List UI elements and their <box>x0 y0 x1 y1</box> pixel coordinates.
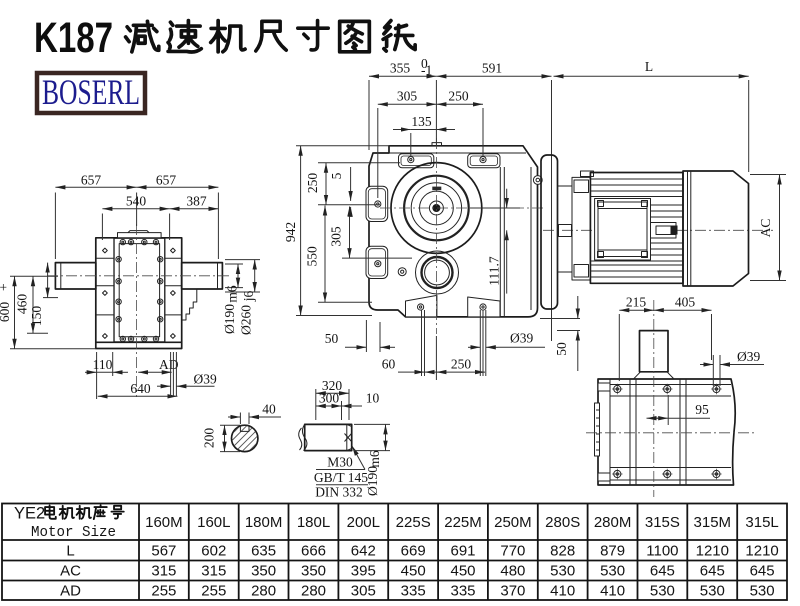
svg-text:Ø39: Ø39 <box>194 371 217 386</box>
svg-text:200L: 200L <box>347 514 380 531</box>
svg-text:355: 355 <box>390 61 411 76</box>
svg-text:160M: 160M <box>145 514 183 531</box>
svg-text:Ø190: Ø190 <box>365 466 380 496</box>
svg-text:Motor Size: Motor Size <box>31 524 116 541</box>
svg-text:M30: M30 <box>327 455 353 470</box>
svg-text:350: 350 <box>251 563 276 580</box>
svg-text:335: 335 <box>401 583 426 600</box>
svg-text:315S: 315S <box>645 514 680 531</box>
svg-text:669: 669 <box>401 543 426 560</box>
svg-text:942: 942 <box>283 222 298 242</box>
svg-text:395: 395 <box>351 563 376 580</box>
svg-text:645: 645 <box>750 563 775 580</box>
svg-text:255: 255 <box>151 583 176 600</box>
svg-text:DIN 332: DIN 332 <box>315 485 363 500</box>
svg-text:530: 530 <box>700 583 725 600</box>
svg-text:60: 60 <box>382 356 396 371</box>
svg-text:160L: 160L <box>197 514 230 531</box>
svg-text:645: 645 <box>700 563 725 580</box>
svg-text:600: 600 <box>0 302 12 323</box>
svg-text:540: 540 <box>126 194 147 209</box>
svg-text:j6: j6 <box>241 291 256 303</box>
svg-text:L: L <box>645 59 653 74</box>
svg-text:1210: 1210 <box>745 543 778 560</box>
svg-text:250: 250 <box>448 89 469 104</box>
svg-text:AC: AC <box>758 219 773 238</box>
svg-text:111.7: 111.7 <box>487 256 502 286</box>
svg-text:280M: 280M <box>594 514 632 531</box>
svg-text:657: 657 <box>81 173 102 188</box>
svg-text:410: 410 <box>600 583 625 600</box>
svg-text:280S: 280S <box>545 514 580 531</box>
svg-text:150: 150 <box>29 306 44 327</box>
svg-text:225M: 225M <box>444 514 482 531</box>
svg-text:Ø39: Ø39 <box>510 331 533 346</box>
svg-text:691: 691 <box>450 543 475 560</box>
svg-text:215: 215 <box>626 295 647 310</box>
svg-text:315M: 315M <box>694 514 732 531</box>
svg-text:250: 250 <box>305 173 320 194</box>
svg-text:250: 250 <box>451 356 472 371</box>
svg-text:Ø190: Ø190 <box>222 304 237 334</box>
svg-text:460: 460 <box>15 294 30 315</box>
svg-text:300: 300 <box>319 391 340 406</box>
svg-text:828: 828 <box>550 543 575 560</box>
svg-text:879: 879 <box>600 543 625 560</box>
svg-text:50: 50 <box>325 331 339 346</box>
svg-text:305: 305 <box>397 89 418 104</box>
svg-text:335: 335 <box>450 583 475 600</box>
svg-text:95: 95 <box>695 402 709 417</box>
svg-text:180L: 180L <box>297 514 330 531</box>
svg-text:200: 200 <box>202 428 217 449</box>
svg-text:L: L <box>66 543 74 560</box>
svg-text:640: 640 <box>130 381 151 396</box>
svg-text:40: 40 <box>262 402 276 417</box>
svg-text:405: 405 <box>675 295 696 310</box>
svg-text:315: 315 <box>201 563 226 580</box>
svg-text:450: 450 <box>450 563 475 580</box>
svg-text:450: 450 <box>401 563 426 580</box>
svg-text:5: 5 <box>329 172 344 179</box>
svg-text:602: 602 <box>201 543 226 560</box>
svg-text:666: 666 <box>301 543 326 560</box>
svg-text:10: 10 <box>366 391 380 406</box>
svg-text:280: 280 <box>301 583 326 600</box>
svg-text:657: 657 <box>156 173 177 188</box>
svg-text:480: 480 <box>500 563 525 580</box>
svg-text:591: 591 <box>482 61 502 76</box>
svg-text:770: 770 <box>500 543 525 560</box>
svg-text:280: 280 <box>251 583 276 600</box>
svg-text:GB/T 145: GB/T 145 <box>314 470 368 485</box>
svg-text:315: 315 <box>151 563 176 580</box>
svg-text:250M: 250M <box>494 514 532 531</box>
svg-text:110: 110 <box>93 357 113 372</box>
svg-text:530: 530 <box>600 563 625 580</box>
svg-text:305: 305 <box>329 226 344 247</box>
svg-text:BOSERL: BOSERL <box>42 72 140 112</box>
svg-text:305: 305 <box>351 583 376 600</box>
svg-text:255: 255 <box>201 583 226 600</box>
svg-text:387: 387 <box>186 194 207 209</box>
svg-text:180M: 180M <box>245 514 283 531</box>
svg-text:635: 635 <box>251 543 276 560</box>
svg-text:Ø39: Ø39 <box>737 349 760 364</box>
svg-text:530: 530 <box>650 583 675 600</box>
svg-text:370: 370 <box>500 583 525 600</box>
svg-text:-1: -1 <box>421 63 432 78</box>
svg-text:m6: m6 <box>367 450 382 468</box>
svg-text:530: 530 <box>750 583 775 600</box>
svg-text:530: 530 <box>550 563 575 580</box>
svg-text:550: 550 <box>304 246 319 267</box>
svg-text:+: + <box>0 283 11 291</box>
svg-text:YE2: YE2 <box>14 505 45 523</box>
svg-text:1210: 1210 <box>696 543 729 560</box>
svg-text:AD: AD <box>159 357 179 372</box>
svg-text:m6: m6 <box>225 285 240 303</box>
svg-text:642: 642 <box>351 543 376 560</box>
svg-text:410: 410 <box>550 583 575 600</box>
svg-text:1100: 1100 <box>646 543 678 560</box>
svg-text:50: 50 <box>554 342 569 356</box>
svg-text:AC: AC <box>60 563 81 580</box>
svg-text:AD: AD <box>60 583 81 600</box>
svg-text:315L: 315L <box>745 514 778 531</box>
svg-text:135: 135 <box>411 114 432 129</box>
svg-text:225S: 225S <box>396 514 431 531</box>
svg-text:645: 645 <box>650 563 675 580</box>
svg-text:350: 350 <box>301 563 326 580</box>
svg-text:Ø260: Ø260 <box>239 305 254 335</box>
svg-text:K187: K187 <box>34 14 113 62</box>
svg-text:567: 567 <box>151 543 176 560</box>
